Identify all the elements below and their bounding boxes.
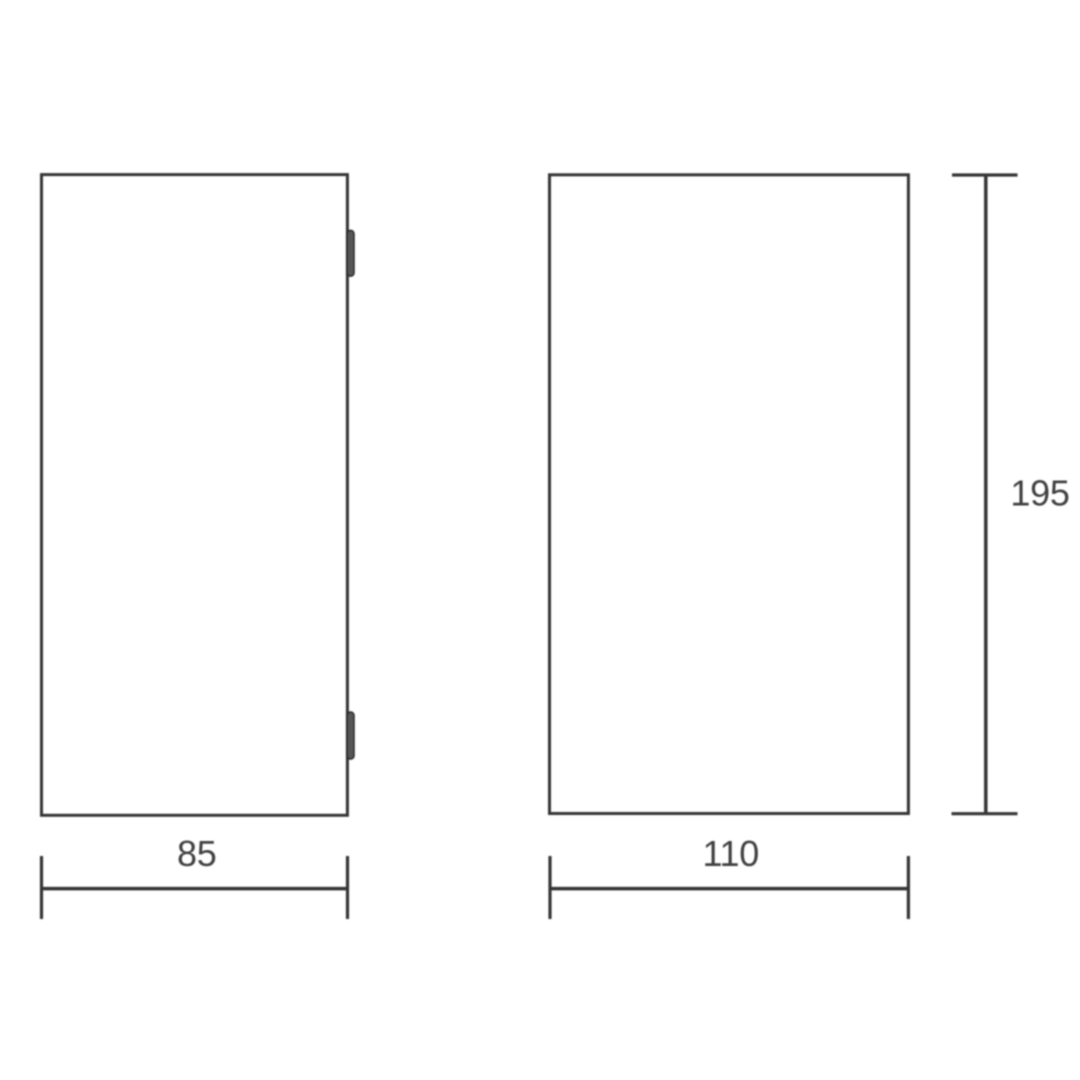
svg-text:110: 110 (702, 833, 759, 874)
svg-text:85: 85 (177, 833, 216, 874)
svg-text:195: 195 (1010, 473, 1069, 514)
